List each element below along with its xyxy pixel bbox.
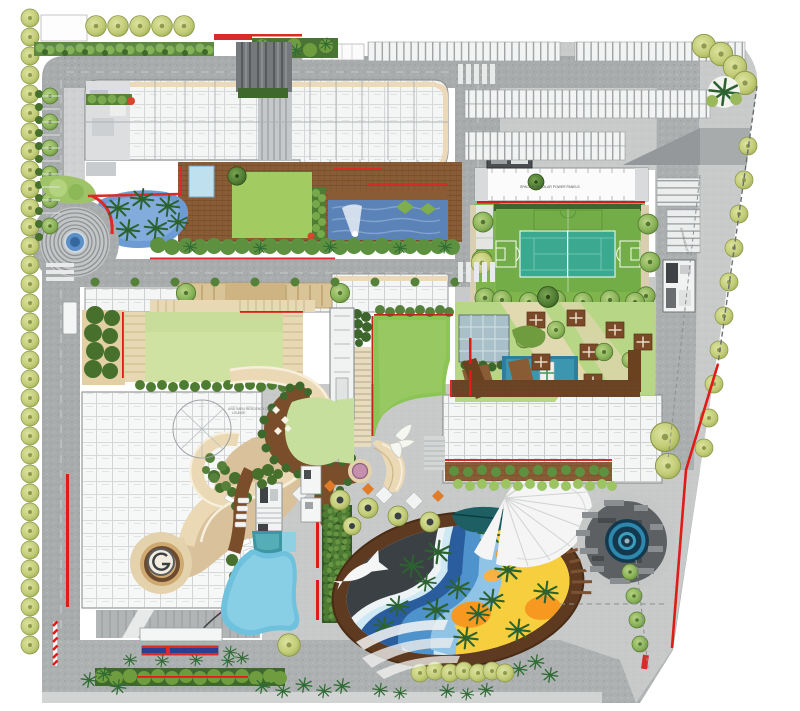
svg-text:LOUNGE: LOUNGE xyxy=(232,411,245,415)
svg-text:SPACE FOR SOLAR POWER PANELS: SPACE FOR SOLAR POWER PANELS xyxy=(520,185,580,189)
